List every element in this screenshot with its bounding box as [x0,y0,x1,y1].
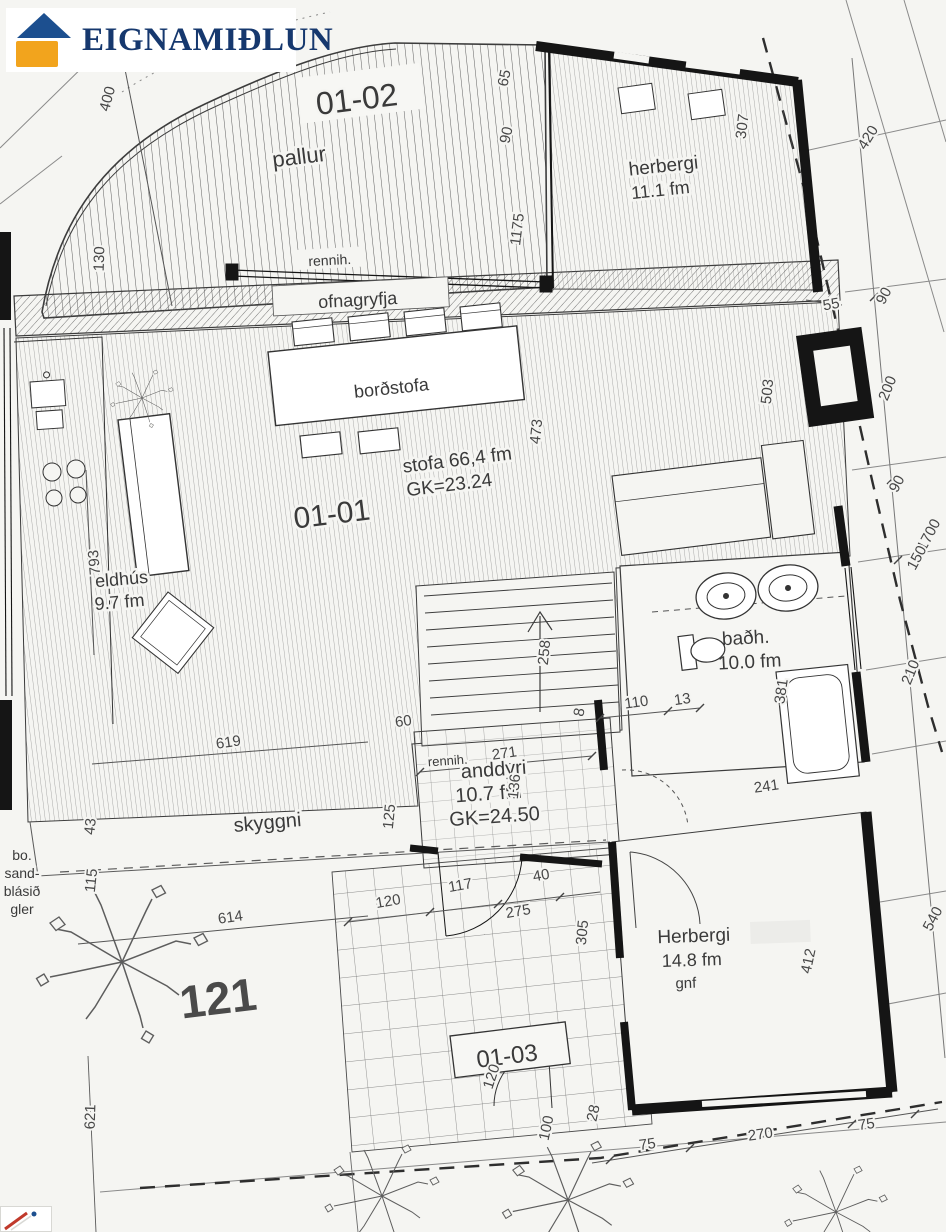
dim-270: 270 [747,1124,774,1144]
bathroom [620,552,864,826]
agency-logo: EIGNAMIÐLUN [6,8,296,72]
dim-55: 55 [822,295,841,315]
dining-chair [460,303,502,331]
dim-400: 400 [96,85,119,114]
dining-chair [300,432,342,458]
dim-125: 125 [380,803,400,830]
dim-60: 60 [394,712,413,731]
dim-210: 210 [898,658,923,688]
dim-271: 271 [491,743,518,763]
dim-619: 619 [215,732,242,752]
floor-plan-canvas: 01-02 pallur herbergi 11.1 fm rennih. of… [0,0,946,1232]
dim-75b: 75 [857,1115,876,1134]
dim-115: 115 [82,868,101,894]
dim-614: 614 [217,907,244,927]
room-area-badh: 10.0 fm [718,650,782,674]
dim-90c: 90 [886,473,909,496]
dim-503: 503 [758,378,778,405]
label-skyggni: skyggni [233,809,302,837]
dining-chair [292,318,334,346]
room-note-gnf: gnf [675,975,697,993]
logo-roof-shape [17,13,71,38]
dim-381: 381 [771,678,791,705]
label-sand: sand- [4,865,39,881]
dim-241: 241 [753,776,780,796]
label-blasid: blásið [4,883,41,899]
dining-chair [358,428,400,454]
house-logo-icon [16,13,72,67]
dim-621: 621 [82,1104,100,1130]
dim-130: 130 [91,246,109,272]
dim-136: 136 [505,773,525,800]
room-label-herbergi-bottom: Herbergi [657,925,731,949]
dim-40: 40 [532,866,551,886]
dim-110: 110 [623,692,649,712]
dim-90a: 90 [497,125,517,145]
dim-75a: 75 [638,1135,657,1154]
dim-305: 305 [573,919,593,946]
dim-43: 43 [81,817,100,835]
dim-793: 793 [85,549,104,575]
room-label-badh: baðh. [721,627,770,650]
room-area-herbergi-bottom: 14.8 fm [661,949,722,971]
logo-body-shape [16,41,58,67]
dim-65: 65 [495,68,515,88]
label-ofnagryfja: ofnagryfja [318,288,399,312]
dim-258: 258 [535,639,555,666]
agency-name: EIGNAMIÐLUN [82,22,333,59]
floor-plan-page: 01-02 pallur herbergi 11.1 fm rennih. of… [0,0,946,1232]
dining-chair [348,313,390,341]
label-gler: gler [10,901,34,917]
corner-stamp-icon [1,1207,51,1231]
dining-chair [404,308,446,336]
dim-307: 307 [733,113,753,140]
tree-icon [325,1145,439,1232]
label-bo: bo. [12,847,31,863]
house-number: 121 [177,968,260,1029]
chimney [796,327,874,427]
room-bottom-right [612,812,892,1110]
dim-13: 13 [673,690,692,709]
dim-540: 540 [920,904,946,934]
tree-icon [785,1166,888,1232]
dim-473: 473 [527,418,547,445]
door-label-rennih-top: rennih. [308,251,352,269]
dim-200: 200 [875,374,900,404]
dim-28: 28 [584,1103,604,1123]
corner-stamp-fragment [0,1206,52,1232]
